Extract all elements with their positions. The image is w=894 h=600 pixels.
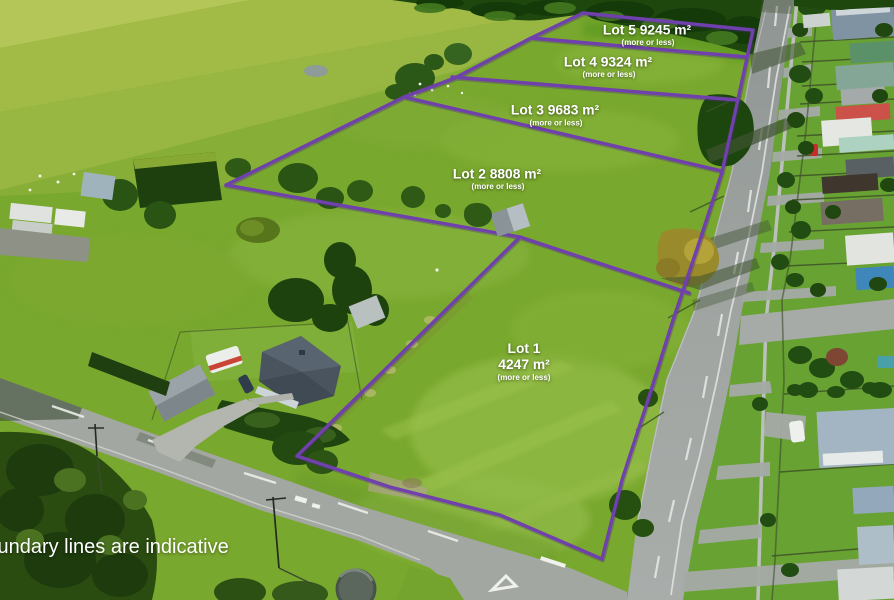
svg-text:(more or less): (more or less) (498, 373, 551, 382)
svg-text:(more or less): (more or less) (622, 38, 675, 47)
svg-text:4247 m²: 4247 m² (498, 357, 550, 372)
svg-text:(more or less): (more or less) (472, 182, 525, 191)
svg-text:Lot 2 8808 m²: Lot 2 8808 m² (453, 167, 542, 182)
svg-text:(more or less): (more or less) (530, 119, 583, 128)
svg-text:(more or less): (more or less) (583, 70, 636, 79)
svg-text:Lot 3 9683 m²: Lot 3 9683 m² (511, 103, 600, 118)
svg-text:Lot 1: Lot 1 (508, 341, 541, 356)
svg-text:Boundary lines are indicative: Boundary lines are indicative (0, 536, 229, 558)
svg-text:Lot 5 9245 m²: Lot 5 9245 m² (603, 23, 692, 38)
svg-text:Lot 4 9324 m²: Lot 4 9324 m² (564, 55, 653, 70)
